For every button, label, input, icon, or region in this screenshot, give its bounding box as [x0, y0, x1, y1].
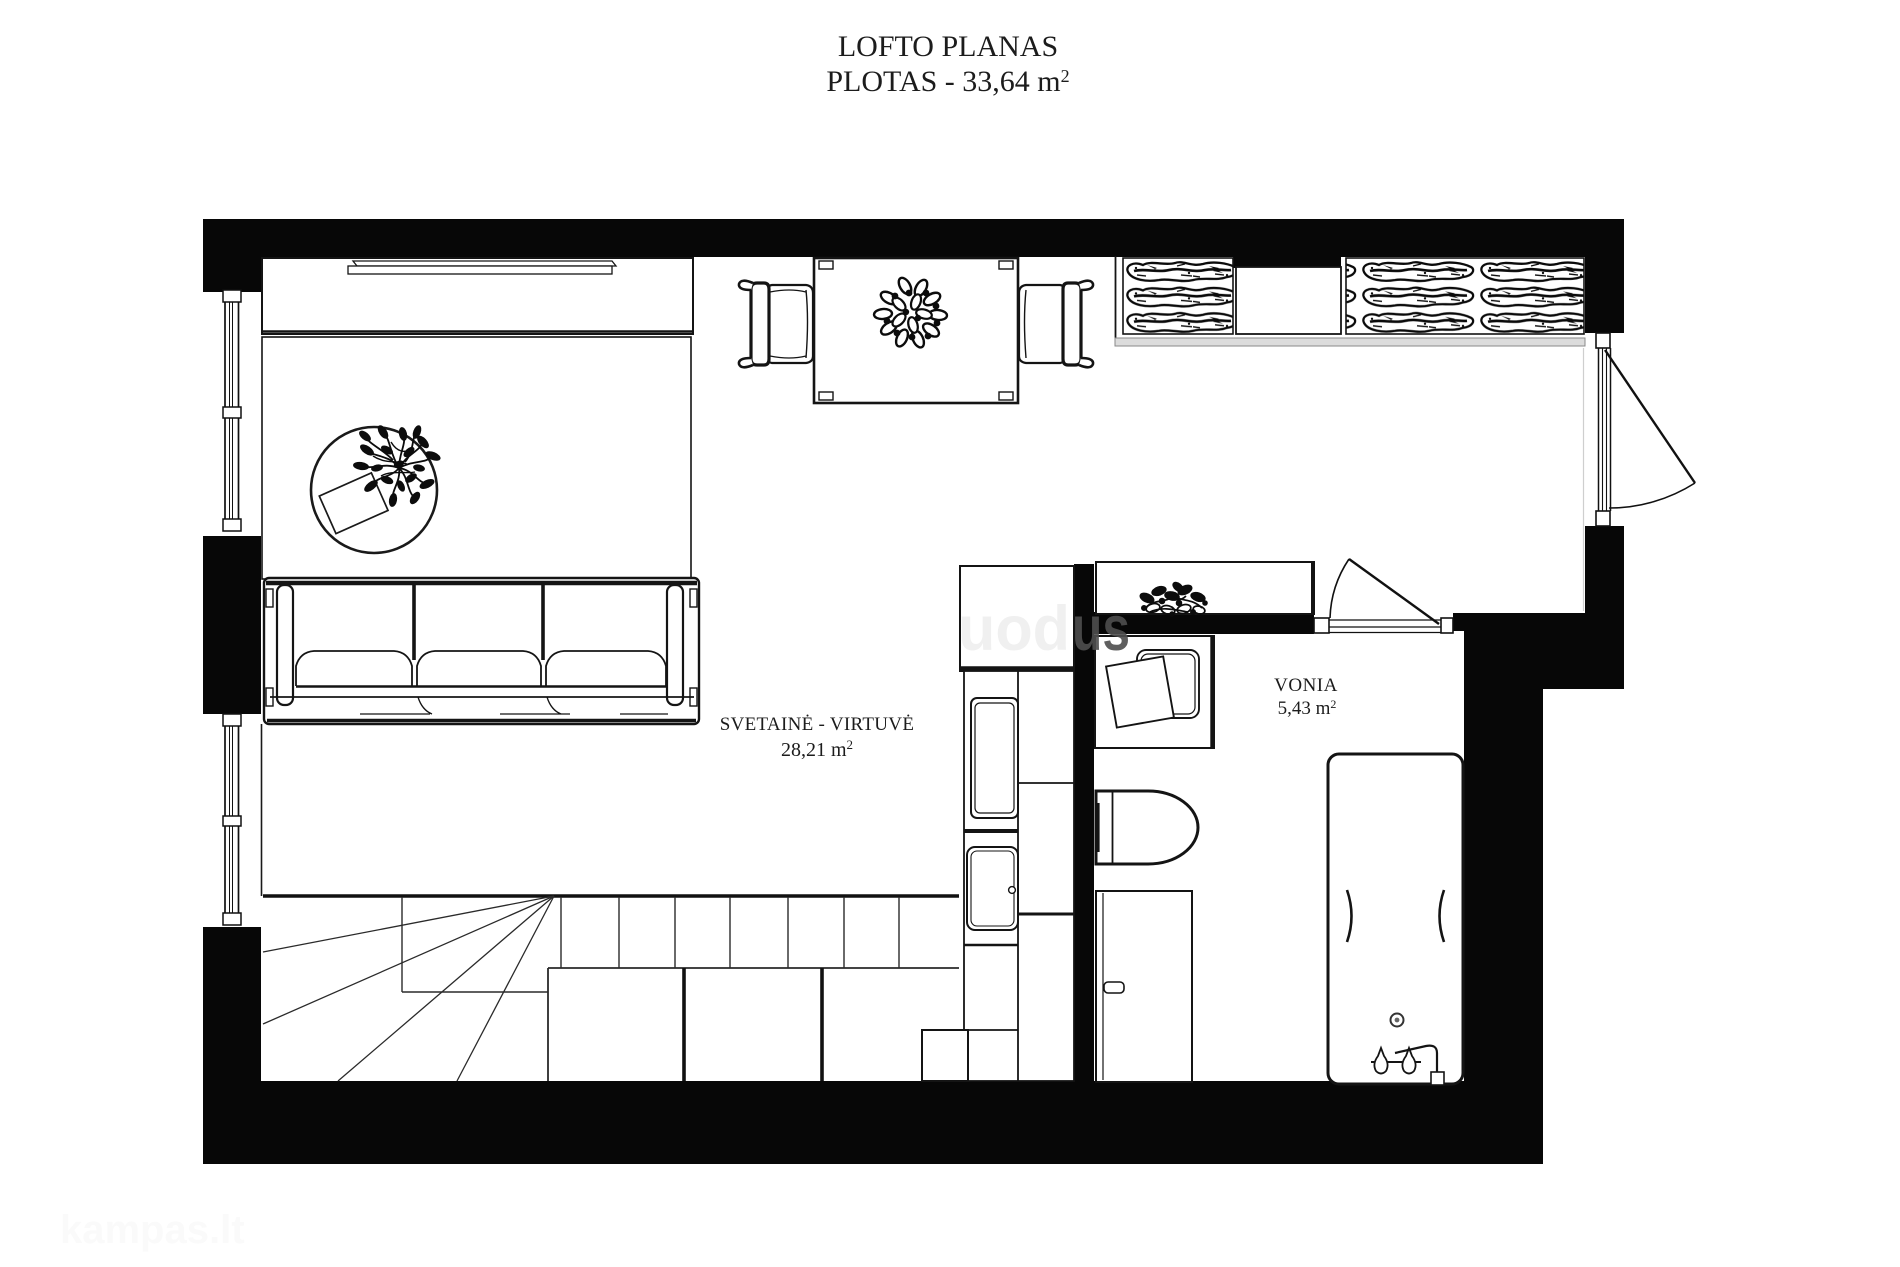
svg-text:VONIA: VONIA: [1274, 675, 1338, 696]
svg-text:us: us: [1072, 594, 1130, 664]
svg-text:uod: uod: [958, 594, 1070, 664]
svg-text:28,21 m2: 28,21 m2: [781, 737, 853, 761]
svg-text:SVETAINĖ - VIRTUVĖ: SVETAINĖ - VIRTUVĖ: [720, 714, 914, 735]
svg-text:5,43 m2: 5,43 m2: [1278, 697, 1337, 719]
svg-text:LOFTO PLANAS: LOFTO PLANAS: [838, 30, 1058, 63]
svg-text:kampas.lt: kampas.lt: [60, 1208, 245, 1252]
svg-text:PLOTAS - 33,64 m2: PLOTAS - 33,64 m2: [826, 65, 1069, 98]
